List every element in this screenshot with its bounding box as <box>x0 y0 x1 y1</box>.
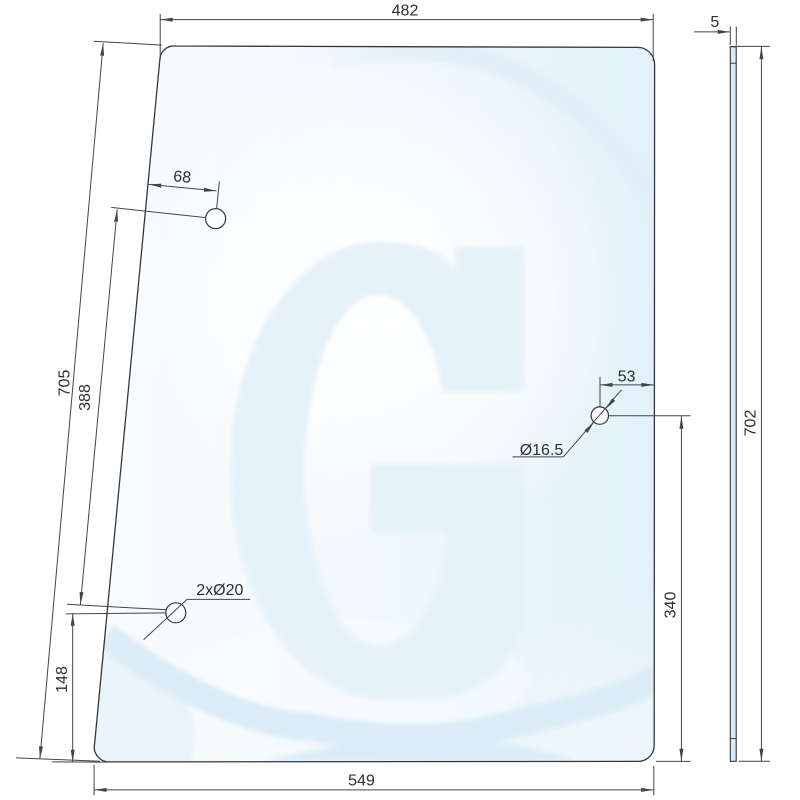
svg-text:2xØ20: 2xØ20 <box>196 582 243 599</box>
svg-text:482: 482 <box>392 2 419 19</box>
svg-text:Ø16.5: Ø16.5 <box>520 442 564 459</box>
svg-text:340: 340 <box>662 592 679 619</box>
svg-text:5: 5 <box>710 14 719 31</box>
svg-text:53: 53 <box>618 368 636 385</box>
svg-text:702: 702 <box>743 410 760 437</box>
svg-text:68: 68 <box>172 168 191 187</box>
svg-text:148: 148 <box>54 666 71 693</box>
svg-text:549: 549 <box>348 773 375 790</box>
svg-text:705: 705 <box>57 370 74 397</box>
svg-text:388: 388 <box>77 384 94 411</box>
